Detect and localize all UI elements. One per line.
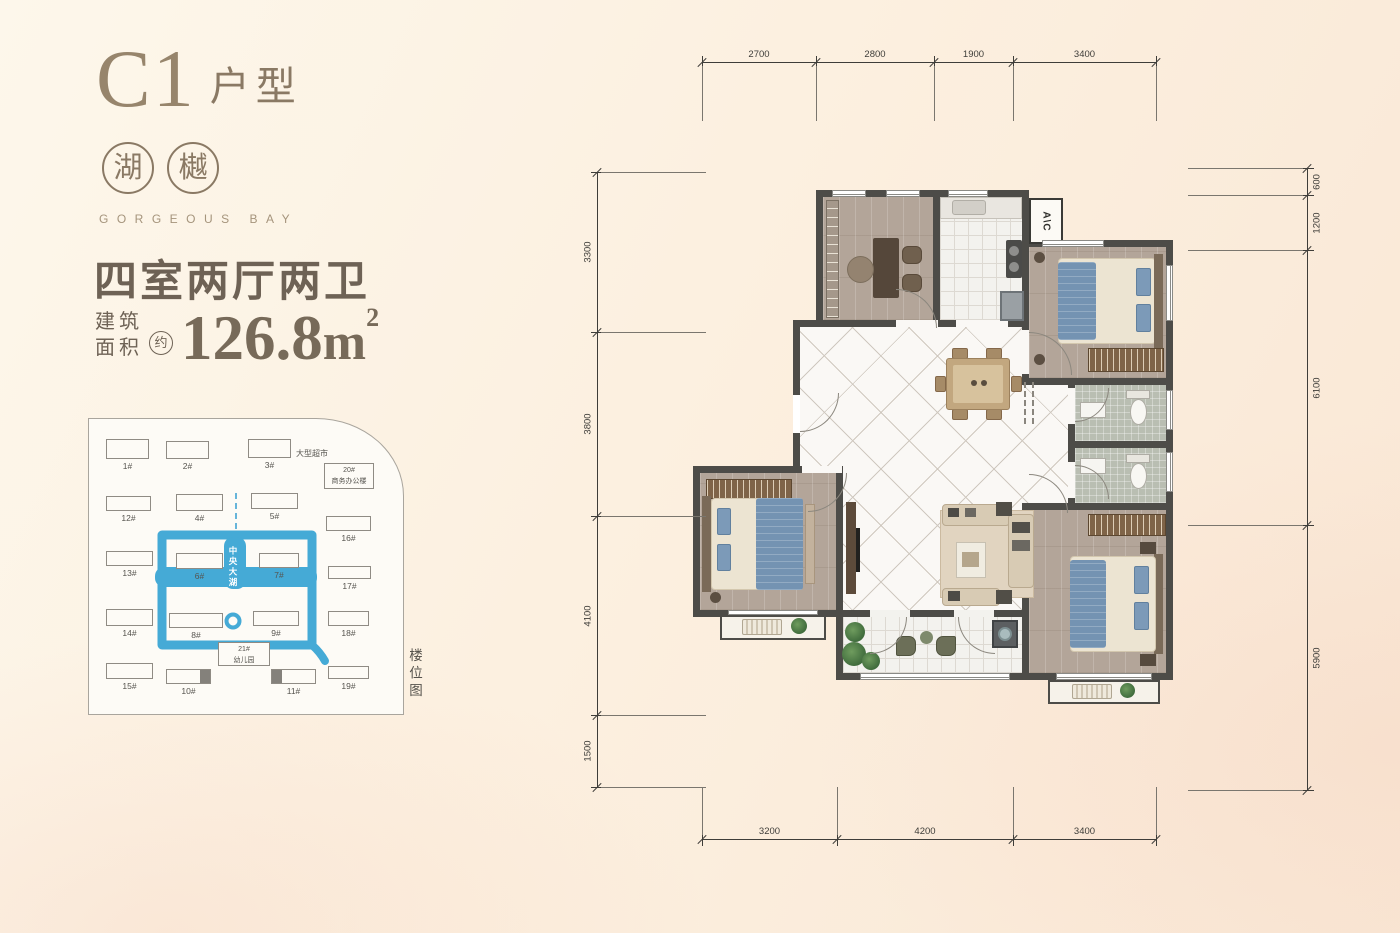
dimension-line (816, 66, 817, 121)
dimension-line (702, 839, 1156, 840)
dimension-line (601, 715, 706, 716)
dimension-line (1188, 790, 1303, 791)
dimension-label: 1500 (583, 740, 594, 761)
dimension-line (601, 332, 706, 333)
dimension-label: 5900 (1312, 647, 1323, 668)
dimension-label: 600 (1312, 174, 1323, 190)
dimension-line (1156, 66, 1157, 121)
dimension-line (1013, 787, 1014, 835)
dimension-label: 3400 (1074, 49, 1095, 60)
dimension-line (601, 172, 706, 173)
poster-canvas: C1 户型 湖 樾 GORGEOUS BAY 四室两厅两卫 建筑 面积 约 12… (0, 0, 1400, 933)
dimension-label: 2700 (748, 49, 769, 60)
dimension-line (1307, 168, 1308, 790)
dimension-label: 3400 (1074, 826, 1095, 837)
dimension-label: 4200 (914, 826, 935, 837)
dimension-line (1188, 195, 1303, 196)
dimension-line (1188, 525, 1303, 526)
dimension-label: 6100 (1312, 377, 1323, 398)
dimension-line (1156, 787, 1157, 835)
dimension-label: 1200 (1312, 212, 1323, 233)
dimension-line (1013, 66, 1014, 121)
dimension-annotations: 2700280019003400320042003400330038004100… (0, 0, 1400, 933)
dimension-line (702, 787, 703, 835)
dimension-line (837, 787, 838, 835)
dimension-line (1188, 250, 1303, 251)
dimension-line (601, 787, 706, 788)
dimension-line (702, 62, 1156, 63)
dimension-label: 2800 (864, 49, 885, 60)
dimension-label: 4100 (583, 605, 594, 626)
dimension-line (1188, 168, 1303, 169)
dimension-line (597, 172, 598, 787)
dimension-label: 3300 (583, 241, 594, 262)
dimension-line (601, 516, 706, 517)
dimension-label: 3800 (583, 413, 594, 434)
dimension-line (934, 66, 935, 121)
dimension-label: 1900 (963, 49, 984, 60)
dimension-line (702, 66, 703, 121)
dimension-label: 3200 (759, 826, 780, 837)
